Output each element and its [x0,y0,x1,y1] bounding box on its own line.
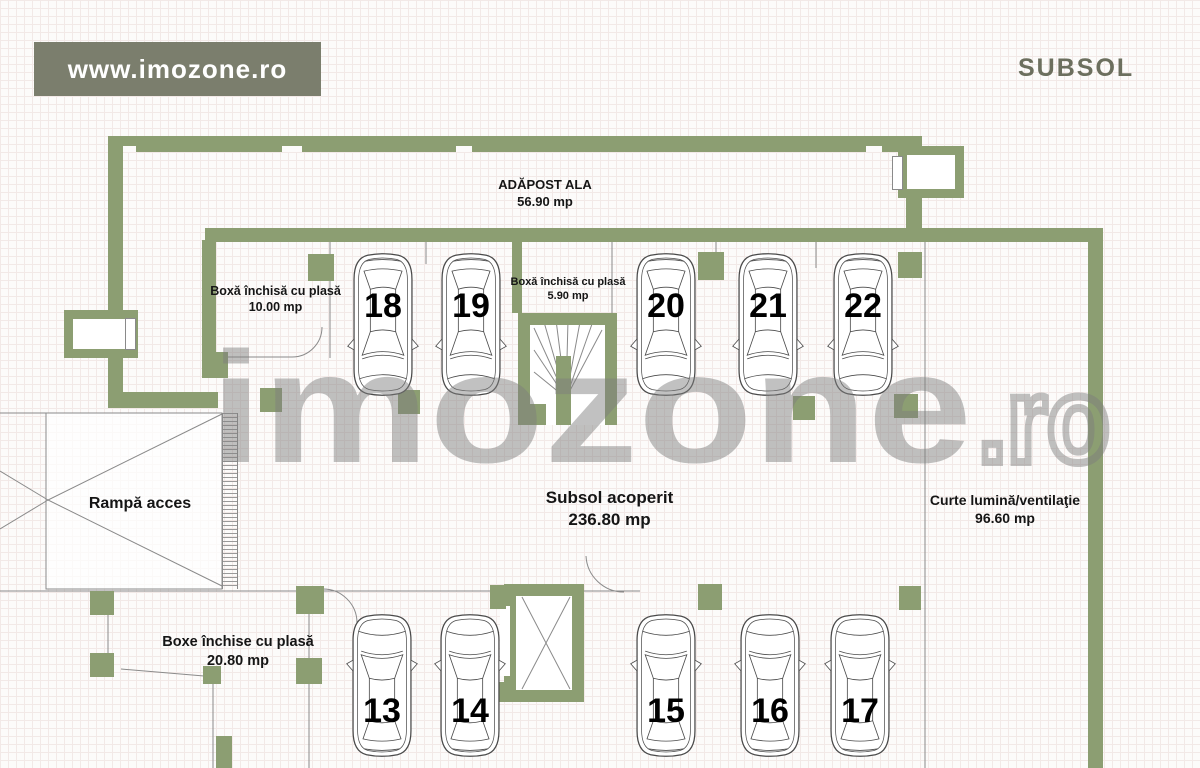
wall-left-elbow [108,392,218,408]
car-icon [822,608,898,763]
wall-notch [456,146,472,152]
elevator-shaft [504,584,584,702]
car-icon [732,608,808,763]
room-label-rampa: Rampă acces [60,494,220,515]
wall-stairs-bottom [518,404,546,425]
pillar [296,586,324,614]
room-area: 10.00 mp [198,299,353,315]
pillar [698,584,722,610]
parking-spot: 17 [822,608,898,763]
pillar [308,254,334,281]
car-icon [344,608,420,763]
wall-outer-top [108,136,922,152]
wall-stairs-newel [556,356,571,425]
parking-spot-number: 14 [432,692,508,731]
room-label-curte: Curte lumină/ventilaţie 96.60 mp [915,491,1095,527]
parking-spot-number: 20 [628,287,704,326]
parking-spot: 20 [628,247,704,402]
pillar [202,352,228,378]
parking-spot-number: 16 [732,692,808,731]
door-leaf [892,156,903,190]
room-name: Boxe închise cu plasă [162,634,314,650]
parking-spot-number: 15 [628,692,704,731]
room-label-boxa590: Boxă închisă cu plasă 5.90 mp [505,275,631,304]
room-area: 56.90 mp [420,194,670,211]
parking-spot: 16 [732,608,808,763]
wall-notch [282,146,302,152]
room-area: 5.90 mp [505,289,631,303]
parking-spot: 19 [433,247,509,402]
room-label-subsol-acoperit: Subsol acoperit 236.80 mp [487,487,732,531]
room-area: 236.80 mp [487,509,732,531]
parking-spot: 13 [344,608,420,763]
wall-bottom-left-stub [216,736,232,768]
room-name: Curte lumină/ventilaţie [930,492,1080,508]
parking-spot: 18 [345,247,421,402]
pillar [90,653,114,677]
parking-spot-number: 18 [345,287,421,326]
room-name: Rampă acces [89,495,191,512]
floor-plan-canvas: 18 19 20 21 22 13 14 15 16 17 ADĂPOST AL… [0,0,1200,768]
car-icon [628,608,704,763]
parking-spot-number: 19 [433,287,509,326]
pillar [260,388,282,412]
ramp-grating [222,413,238,589]
wall-inner-top [205,228,1103,242]
wall-outer-left-upper [108,136,123,318]
room-label-adapost: ADĂPOST ALA 56.90 mp [420,177,670,211]
parking-spot-number: 21 [730,287,806,326]
parking-spot: 22 [825,247,901,402]
parking-spot: 21 [730,247,806,402]
parking-spot-number: 13 [344,692,420,731]
room-name: Subsol acoperit [546,488,674,507]
pillar [899,586,921,610]
pillar [90,591,114,615]
parking-spot: 15 [628,608,704,763]
room-label-boxa10: Boxă închisă cu plasă 10.00 mp [198,283,353,316]
room-name: Boxă închisă cu plasă [511,276,626,288]
parking-spot: 14 [432,608,508,763]
room-area: 96.60 mp [915,509,1095,527]
wall-stairs-top [518,313,617,325]
wall-stairs-right [605,313,617,425]
parking-spot-number: 17 [822,692,898,731]
elevator-tab-top [490,585,506,609]
door-leaf [125,318,136,350]
shaft-box-top-right [898,146,964,198]
parking-spot-number: 22 [825,287,901,326]
room-name: ADĂPOST ALA [498,177,591,192]
room-label-boxe: Boxe închise cu plasă 20.80 mp [148,633,328,671]
wall-notch [866,146,882,152]
pillar [898,252,922,278]
site-brand-banner: www.imozone.ro [34,42,321,96]
room-area: 20.80 mp [148,652,328,671]
page-title: SUBSOL [1018,54,1168,83]
room-name: Boxă închisă cu plasă [210,284,341,298]
car-icon [432,608,508,763]
